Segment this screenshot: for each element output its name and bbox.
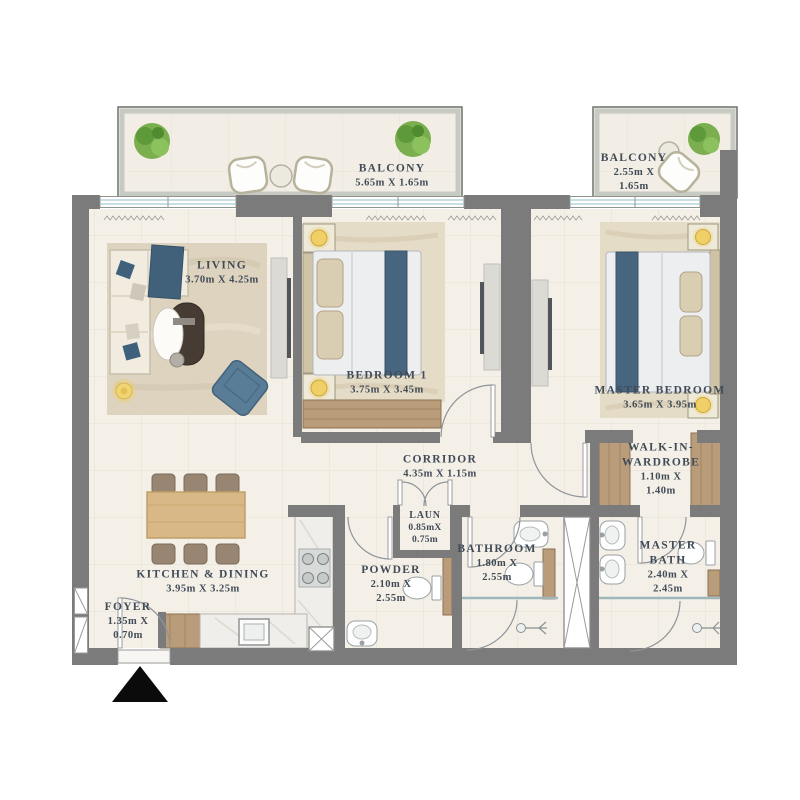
tv-icon xyxy=(287,278,291,358)
window xyxy=(332,197,464,208)
toilet-icon xyxy=(403,576,441,600)
kitchen-counter-bottom xyxy=(160,614,307,648)
tv-console xyxy=(484,264,500,370)
balcony-chair xyxy=(293,156,333,195)
tv-icon xyxy=(480,282,484,354)
window xyxy=(100,197,236,208)
wall-panel xyxy=(75,588,88,653)
nightstand-lamp-icon xyxy=(688,224,718,250)
nightstand-lamp-icon xyxy=(303,224,335,252)
nightstand-lamp-icon xyxy=(303,374,335,402)
coffee-table xyxy=(153,303,204,367)
floorplan-page: BALCONY 5.65m X 1.65m BALCONY 2.55m X 1.… xyxy=(0,0,800,800)
dining-table xyxy=(147,492,245,538)
toilet-icon xyxy=(678,541,715,565)
floor-lamp-icon xyxy=(112,379,136,403)
bed-runner xyxy=(385,251,407,375)
plant-icon xyxy=(688,123,720,155)
toilet-icon xyxy=(505,562,543,586)
entrance-triangle-icon xyxy=(112,666,168,702)
windows xyxy=(100,197,700,208)
plant-icon xyxy=(395,121,431,157)
balcony-main xyxy=(118,107,462,198)
tv-console xyxy=(271,258,287,378)
duct-shaft xyxy=(564,517,590,648)
sink-icon xyxy=(600,555,626,584)
powder-vanity-wood xyxy=(443,557,452,615)
sink-icon xyxy=(600,521,626,550)
floorplan-canvas xyxy=(0,0,800,800)
dining-set xyxy=(147,474,245,564)
duct-shaft xyxy=(309,627,334,651)
balcony-master xyxy=(593,107,737,198)
wardrobe xyxy=(303,400,441,428)
kitchen-sink-icon xyxy=(239,619,269,645)
sink-icon xyxy=(347,621,377,646)
bed-headboard xyxy=(710,250,720,394)
stove-icon xyxy=(299,549,330,587)
master-bath-wood xyxy=(708,570,720,596)
window xyxy=(570,197,700,208)
balcony-chair xyxy=(228,156,268,195)
nightstand-lamp-icon xyxy=(688,392,718,418)
tv-console xyxy=(532,280,548,386)
balcony-table xyxy=(270,165,292,187)
tv-icon xyxy=(548,298,552,370)
bed-runner xyxy=(616,252,638,392)
bed-headboard xyxy=(303,253,313,373)
bathroom-vanity-wood xyxy=(543,549,555,599)
plant-icon xyxy=(134,123,170,159)
